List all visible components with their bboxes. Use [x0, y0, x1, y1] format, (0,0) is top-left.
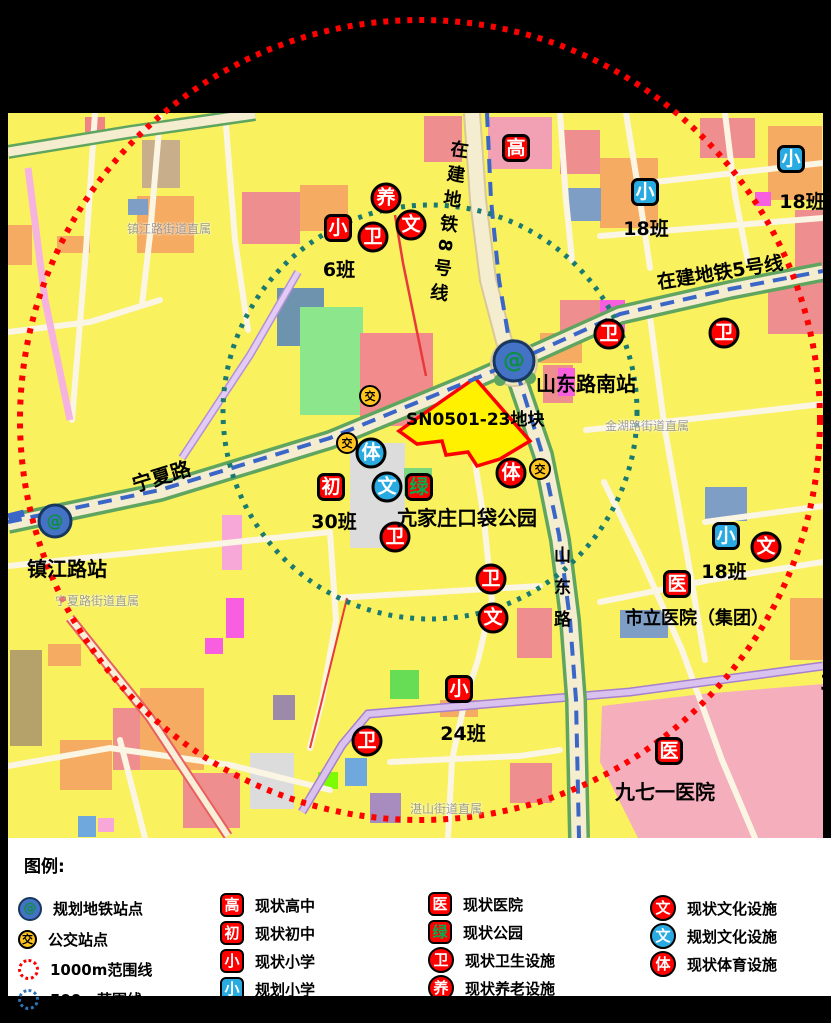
legend-item: 高现状高中 — [220, 891, 315, 919]
legend-item-label: 现状公园 — [463, 922, 523, 943]
marker-planned-primary-school: 小 — [631, 178, 659, 206]
legend-item-label: 现状卫生设施 — [465, 950, 555, 971]
class-count-label: 6班 — [323, 255, 355, 282]
marker-culture-facility: 文 — [478, 603, 509, 634]
legend-item: 卫现状卫生设施 — [428, 946, 555, 974]
marker-culture-facility: 文 — [396, 210, 427, 241]
legend-item-label: 现状初中 — [255, 923, 315, 944]
971-hospital-label: 九七一医院 — [615, 776, 715, 805]
legend-item: 文现状文化设施 — [650, 894, 777, 922]
marker-primary-school: 小 — [324, 214, 352, 242]
legend-item: 绿现状公园 — [428, 918, 555, 946]
legend-item: 初现状初中 — [220, 919, 315, 947]
legend-item-label: 公交站点 — [48, 929, 108, 950]
legend-item: 文规划文化设施 — [650, 922, 777, 950]
legend-title: 图例: — [24, 852, 65, 877]
legend-item: 医现状医院 — [428, 890, 555, 918]
legend: 图例: @规划地铁站点交公交站点1000m范围线500m范围线高现状高中初现状初… — [8, 838, 831, 996]
legend-sq-red-icon: 初 — [220, 921, 244, 945]
legend-column: 高现状高中初现状初中小现状小学小规划小学 — [220, 891, 315, 1003]
watermark: 金湖路街道直属 — [605, 417, 689, 434]
marker-high-school: 高 — [502, 134, 530, 162]
marker-hospital: 医 — [663, 570, 691, 598]
legend-item: 体现状体育设施 — [650, 950, 777, 978]
legend-item-label: 现状高中 — [255, 895, 315, 916]
marker-elder-care: 养 — [371, 183, 402, 214]
class-count-label: 30班 — [311, 507, 356, 534]
bus-stop-icon: 交 — [336, 432, 358, 454]
bus-stop-icon: 交 — [529, 458, 551, 480]
legend-ci-red-icon: 文 — [650, 895, 676, 921]
zhenjiang-road-station-label: 镇江路站 — [27, 553, 107, 582]
legend-item: 小现状小学 — [220, 947, 315, 975]
watermark: 镇江路街道直属 — [127, 220, 211, 237]
metro-line5-label: 在建地铁5号线 — [655, 248, 785, 295]
edge-cut-label: 3 — [820, 671, 831, 695]
class-count-label: 18班 — [623, 214, 668, 241]
watermark: 湛山街道直属 — [410, 800, 482, 817]
legend-sq-red-icon: 医 — [428, 892, 452, 916]
marker-planned-primary-school: 小 — [777, 145, 805, 173]
legend-item-label: 1000m范围线 — [50, 959, 152, 980]
shandong-road-label: 山东路 — [548, 546, 573, 642]
legend-item-label: 现状文化设施 — [687, 898, 777, 919]
marker-health-facility: 卫 — [476, 564, 507, 595]
bus-stop-icon: 交 — [359, 385, 381, 407]
legend-ci-red-icon: 体 — [650, 951, 676, 977]
municipal-hospital-label: 市立医院（集团） — [625, 604, 769, 630]
legend-item: 交公交站点 — [18, 925, 152, 954]
legend-item: @规划地铁站点 — [18, 892, 152, 925]
marker-health-facility: 卫 — [594, 319, 625, 350]
legend-item-label: 规划文化设施 — [687, 926, 777, 947]
marker-culture-facility: 文 — [751, 532, 782, 563]
legend-item: 1000m范围线 — [18, 954, 152, 984]
legend-ci-red-icon: 卫 — [428, 947, 454, 973]
metro-station-icon: @ — [18, 897, 42, 921]
ningxia-road-label: 宁夏路 — [128, 452, 194, 497]
legend-item-label: 现状小学 — [255, 951, 315, 972]
bus-stop-icon: 交 — [18, 930, 37, 949]
class-count-label: 18班 — [779, 187, 824, 214]
red-dotted-circle-icon — [18, 959, 39, 980]
marker-health-facility: 卫 — [709, 318, 740, 349]
legend-ci-blue-icon: 文 — [650, 923, 676, 949]
shandong-road-south-station-icon: @ — [493, 340, 536, 383]
pocket-park-label: 亢家庄口袋公园 — [397, 502, 537, 531]
marker-park: 绿 — [405, 473, 433, 501]
legend-column: 医现状医院绿现状公园卫现状卫生设施养现状养老设施 — [428, 890, 555, 1002]
legend-sq-red-icon: 小 — [220, 949, 244, 973]
planning-map-figure: 高小小小初绿医医小小养卫文卫卫体文体卫卫文文卫交交交@山东路南站@镇江路站SN0… — [0, 0, 831, 1023]
marker-middle-school: 初 — [317, 473, 345, 501]
watermark: 宁夏路街道直属 — [55, 592, 139, 609]
marker-planned-primary-school: 小 — [712, 522, 740, 550]
legend-sq-red-green-icon: 绿 — [428, 920, 452, 944]
plot-label: SN0501-23地块 — [406, 405, 545, 430]
blue-dotted-circle-icon — [18, 989, 39, 1010]
legend-sq-red-icon: 高 — [220, 893, 244, 917]
legend-column: 文现状文化设施文规划文化设施体现状体育设施 — [650, 894, 777, 978]
legend-item-label: 规划地铁站点 — [53, 898, 143, 919]
bottom-black-bar — [0, 996, 831, 1023]
marker-primary-school: 小 — [445, 675, 473, 703]
legend-item-label: 现状医院 — [463, 894, 523, 915]
marker-planned-culture-facility: 文 — [372, 472, 403, 503]
marker-health-facility: 卫 — [358, 222, 389, 253]
legend-item-label: 现状体育设施 — [687, 954, 777, 975]
marker-health-facility: 卫 — [352, 726, 383, 757]
metro-line8-label: 在建地铁8号线 — [422, 138, 471, 309]
marker-planned-sports-facility: 体 — [356, 438, 387, 469]
marker-hospital: 医 — [655, 737, 683, 765]
shandong-road-south-station-label: 山东路南站 — [536, 368, 636, 397]
marker-sports-facility: 体 — [496, 458, 527, 489]
class-count-label: 18班 — [701, 557, 746, 584]
class-count-label: 24班 — [440, 719, 485, 746]
zhenjiang-road-station-icon: @ — [38, 504, 73, 539]
